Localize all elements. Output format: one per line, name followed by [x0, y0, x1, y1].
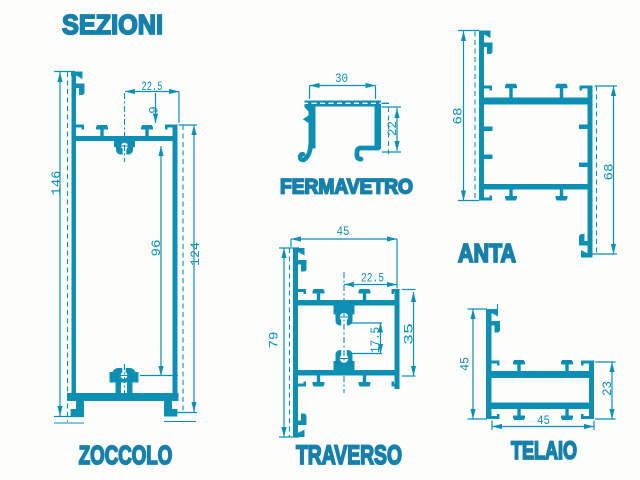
svg-text:FERMAVETRO: FERMAVETRO: [280, 175, 413, 199]
svg-text:96: 96: [150, 240, 164, 257]
svg-text:9: 9: [148, 106, 162, 114]
svg-text:SEZIONI: SEZIONI: [62, 9, 163, 40]
svg-text:TRAVERSO: TRAVERSO: [296, 440, 402, 470]
svg-text:ZOCCOLO: ZOCCOLO: [79, 440, 173, 470]
svg-text:35: 35: [403, 323, 417, 345]
svg-text:TELAIO: TELAIO: [511, 437, 577, 465]
svg-text:30: 30: [335, 72, 348, 86]
svg-text:45: 45: [337, 225, 350, 239]
svg-text:68: 68: [603, 164, 617, 181]
svg-text:22.5: 22.5: [361, 272, 384, 286]
svg-text:45: 45: [459, 357, 473, 371]
svg-text:146: 146: [50, 171, 64, 196]
svg-text:ANTA: ANTA: [458, 240, 516, 268]
svg-text:23: 23: [601, 381, 615, 396]
svg-text:124: 124: [189, 242, 203, 266]
svg-text:79: 79: [268, 332, 282, 349]
